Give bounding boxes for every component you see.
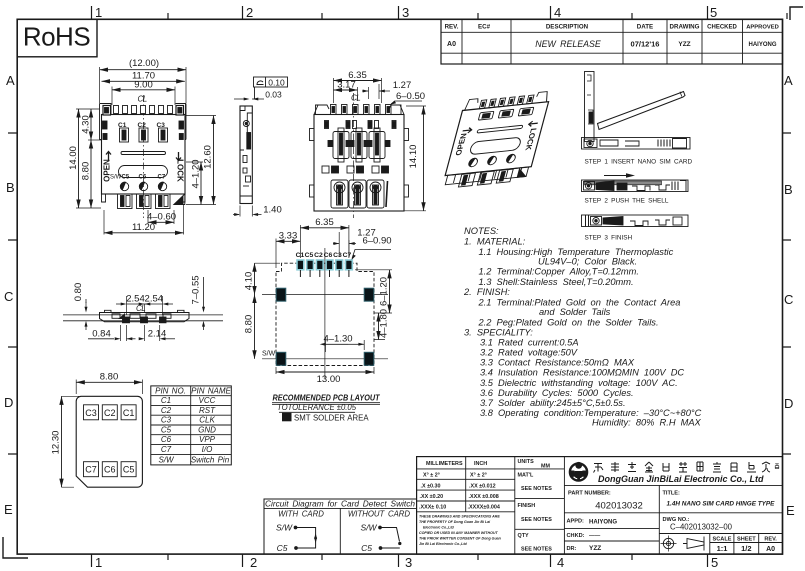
- svg-text:0.10: 0.10: [268, 78, 285, 88]
- svg-text:B: B: [6, 180, 15, 195]
- svg-text:Switch Pin: Switch Pin: [191, 455, 230, 464]
- svg-text:VPP: VPP: [199, 435, 216, 444]
- svg-text:D: D: [4, 395, 13, 410]
- svg-text:0.03: 0.03: [265, 90, 282, 100]
- svg-text:NEW RELEASE: NEW RELEASE: [535, 39, 601, 49]
- svg-text:YZZ: YZZ: [678, 41, 690, 48]
- svg-text:MM: MM: [541, 464, 550, 470]
- svg-text:A: A: [784, 73, 793, 88]
- svg-text:Circuit Diagram for Card D: Circuit Diagram for Card Detect Switch: [265, 498, 415, 508]
- svg-text:THE PROPERTY OF Dong Guan Jin: THE PROPERTY OF Dong Guan Jin Bi Lai: [419, 520, 491, 524]
- svg-text:6.35: 6.35: [315, 217, 334, 228]
- svg-text:C5: C5: [161, 425, 172, 434]
- svg-text:6–1.20: 6–1.20: [379, 277, 390, 306]
- svg-text:2: 2: [246, 5, 253, 20]
- svg-text:Humidity: 80% R.H MAX: Humidity: 80% R.H MAX: [592, 418, 702, 428]
- svg-text:DRAWING: DRAWING: [670, 24, 700, 31]
- svg-text:C7: C7: [158, 175, 166, 181]
- svg-text:C3: C3: [85, 408, 97, 418]
- svg-text:TITLE:: TITLE:: [663, 491, 681, 497]
- svg-text:3: 3: [402, 5, 409, 20]
- svg-text:14.00: 14.00: [68, 146, 79, 170]
- svg-text:C5: C5: [122, 175, 130, 181]
- svg-text:EC#: EC#: [478, 24, 491, 31]
- svg-text:C5: C5: [123, 465, 135, 475]
- svg-text:6–0.90: 6–0.90: [362, 236, 391, 247]
- svg-text:STEP 3 FINISH: STEP 3 FINISH: [585, 235, 633, 242]
- svg-text:9.00: 9.00: [134, 80, 153, 91]
- svg-text:3.3 Contact Resistance:50mΩ: 3.3 Contact Resistance:50mΩ MAX: [480, 358, 635, 368]
- svg-text:S/W: S/W: [276, 523, 293, 533]
- svg-text:C1: C1: [161, 396, 171, 405]
- svg-text:C: C: [784, 292, 793, 307]
- svg-text:1.3 Shell:Stainless Steel,T=: 1.3 Shell:Stainless Steel,T=0.20mm.: [479, 277, 634, 287]
- svg-text:3.2 Rated voltage:50V: 3.2 Rated voltage:50V: [480, 348, 578, 358]
- svg-text:C6: C6: [324, 252, 333, 259]
- svg-text:1/2: 1/2: [741, 544, 751, 553]
- svg-text:RST: RST: [199, 406, 216, 415]
- svg-text:SEE NOTES: SEE NOTES: [521, 547, 552, 553]
- svg-text:Jin Bi Lai Electronic Co.,Lt: Jin Bi Lai Electronic Co.,Ltd: [419, 542, 468, 546]
- svg-text:APPROVED: APPROVED: [746, 25, 779, 31]
- svg-text:C6: C6: [161, 435, 172, 444]
- svg-text:8.80: 8.80: [81, 162, 92, 181]
- svg-text:3.7 Solder ability:245±5°C,5: 3.7 Solder ability:245±5°C,5±0.5s.: [480, 398, 626, 408]
- svg-text:A: A: [6, 73, 15, 88]
- svg-text:4–1.20: 4–1.20: [191, 159, 202, 188]
- svg-text:E: E: [786, 503, 795, 518]
- svg-text:C1: C1: [123, 408, 135, 418]
- svg-text:CLK: CLK: [199, 416, 215, 425]
- svg-text:07/12'16: 07/12'16: [631, 40, 660, 49]
- svg-text:HAIYONG: HAIYONG: [589, 520, 617, 526]
- svg-text:SEE NOTES: SEE NOTES: [521, 486, 552, 492]
- svg-text:WITH CARD: WITH CARD: [278, 510, 324, 519]
- svg-text:SMT SOLDER AREA: SMT SOLDER AREA: [294, 413, 369, 422]
- svg-text:3.8 Operating condition:Temp: 3.8 Operating condition:Temperature: –30…: [480, 408, 702, 418]
- svg-text:C5: C5: [277, 543, 288, 553]
- svg-text:C3: C3: [333, 252, 342, 259]
- svg-text:C3: C3: [161, 416, 172, 425]
- svg-text:1: 1: [95, 5, 102, 20]
- svg-text:UNITS: UNITS: [518, 459, 535, 465]
- svg-text:4: 4: [554, 5, 561, 20]
- svg-text:C2: C2: [104, 408, 116, 418]
- svg-text:1.40: 1.40: [263, 205, 282, 216]
- svg-text:REV.: REV.: [445, 24, 459, 31]
- svg-text:C6: C6: [104, 465, 116, 475]
- svg-text:COPIED OR USED IN ANY MANNER W: COPIED OR USED IN ANY MANNER WITHOUT: [419, 531, 498, 535]
- svg-text:and Solder Tails: and Solder Tails: [539, 307, 611, 317]
- svg-text:2.54: 2.54: [145, 294, 164, 305]
- svg-text:PIN NO.: PIN NO.: [155, 386, 186, 395]
- svg-text:0.84: 0.84: [92, 329, 111, 340]
- svg-text:CL: CL: [351, 94, 360, 103]
- svg-text:12.30: 12.30: [51, 431, 62, 455]
- svg-text:3.5 Dielectric withstanding: 3.5 Dielectric withstanding voltage: 100…: [480, 378, 678, 388]
- svg-text:7–0.55: 7–0.55: [191, 275, 202, 304]
- svg-text:13.00: 13.00: [317, 374, 341, 385]
- svg-text:DongGuan JinBiLai Electronic C: DongGuan JinBiLai Electronic Co., Ltd: [598, 474, 764, 484]
- svg-text:VCC: VCC: [199, 396, 216, 405]
- svg-text:3.1 Rated current:0.5A: 3.1 Rated current:0.5A: [480, 338, 579, 348]
- svg-text:STEP 1 INSERT NANO SIM CARD: STEP 1 INSERT NANO SIM CARD: [585, 159, 693, 166]
- svg-text:THESE DRAWINGS AND SPECIFICATI: THESE DRAWINGS AND SPECIFICATIONS ARE: [419, 515, 500, 519]
- svg-text:DESCRIPTION: DESCRIPTION: [546, 24, 589, 31]
- svg-text:DR:: DR:: [567, 546, 577, 552]
- svg-text:1: 1: [95, 555, 102, 570]
- svg-text:1.2 Terminal:Copper Alloy,T=: 1.2 Terminal:Copper Alloy,T=0.12mm.: [479, 267, 639, 277]
- svg-text:STEP 2 PUSH THE SHELL: STEP 2 PUSH THE SHELL: [585, 198, 669, 205]
- svg-text:1.4H NANO SIM CARD HINGE TYPE: 1.4H NANO SIM CARD HINGE TYPE: [667, 501, 776, 508]
- svg-text:CHKD:: CHKD:: [567, 533, 585, 539]
- svg-text:HAIYONG: HAIYONG: [748, 42, 776, 48]
- svg-text:2. FINISH:: 2. FINISH:: [463, 287, 510, 297]
- svg-text:C–402013032–00: C–402013032–00: [670, 523, 733, 532]
- svg-text:3: 3: [405, 555, 412, 570]
- svg-text:4–0.60: 4–0.60: [147, 212, 176, 223]
- svg-text:3.4 Insulation Resistance:10: 3.4 Insulation Resistance:100MΩMIN 100V …: [480, 368, 684, 378]
- svg-text:C7: C7: [343, 252, 352, 259]
- svg-text:14.10: 14.10: [408, 145, 419, 169]
- svg-text:3. SPECIALITY:: 3. SPECIALITY:: [464, 328, 533, 338]
- svg-text:5: 5: [711, 555, 718, 570]
- svg-text:4.30: 4.30: [81, 115, 92, 134]
- svg-text:A0: A0: [447, 41, 456, 48]
- svg-text:MAT'L: MAT'L: [518, 473, 535, 479]
- svg-text:1:1: 1:1: [717, 544, 728, 553]
- svg-text:3.33: 3.33: [279, 231, 298, 242]
- svg-text:.XX ±0.20: .XX ±0.20: [420, 494, 444, 500]
- svg-text:INCH: INCH: [474, 461, 487, 467]
- svg-text:S/W: S/W: [360, 523, 377, 533]
- svg-text:I/O: I/O: [202, 445, 213, 454]
- svg-text:2.1 Terminal:Plated Gold on: 2.1 Terminal:Plated Gold on the Contact …: [478, 298, 681, 308]
- svg-text:X° ± 2°: X° ± 2°: [423, 473, 440, 479]
- svg-text:5: 5: [710, 5, 717, 20]
- svg-text:SHEET: SHEET: [737, 537, 756, 543]
- svg-text:2.54: 2.54: [126, 294, 145, 305]
- svg-text:.XXXX±0.004: .XXXX±0.004: [468, 505, 500, 511]
- svg-text:E: E: [4, 502, 13, 517]
- svg-text:2.2 Peg:Plated Gold on the: 2.2 Peg:Plated Gold on the Solder Tails.: [478, 318, 659, 328]
- svg-text:Electronic Co.,Ltd: Electronic Co.,Ltd: [423, 526, 455, 530]
- svg-text:4–1.30: 4–1.30: [323, 334, 352, 345]
- svg-text:SCALE: SCALE: [713, 537, 732, 543]
- svg-text:2: 2: [250, 555, 257, 570]
- svg-text:.XX ±0.012: .XX ±0.012: [469, 483, 496, 489]
- svg-text:C: C: [4, 289, 13, 304]
- svg-text:402013032: 402013032: [595, 501, 643, 512]
- svg-text:RECOMMENDED PCB LAYOUT: RECOMMENDED PCB LAYOUT: [273, 394, 381, 403]
- svg-text:.XXX ±0.008: .XXX ±0.008: [469, 494, 499, 500]
- svg-text:1.1 Housing:High Temperature: 1.1 Housing:High Temperature Thermoplast…: [479, 247, 674, 257]
- svg-text:APPD:: APPD:: [567, 519, 585, 525]
- svg-text:1.27: 1.27: [393, 80, 412, 91]
- svg-text:S/W: S/W: [110, 175, 122, 181]
- svg-text:PIN NAME: PIN NAME: [191, 386, 231, 395]
- svg-text:C5: C5: [305, 252, 314, 259]
- svg-text:C2: C2: [161, 406, 172, 415]
- svg-text:SEE NOTES: SEE NOTES: [521, 517, 552, 523]
- svg-text:4: 4: [557, 555, 564, 570]
- svg-text:QTY: QTY: [518, 533, 529, 539]
- svg-text:CL: CL: [136, 304, 145, 313]
- svg-text:C2: C2: [314, 252, 323, 259]
- svg-text:12.60: 12.60: [203, 145, 214, 169]
- svg-text:THE PRIOR WRITTEN CONSENT OF D: THE PRIOR WRITTEN CONSENT OF Dong Guan: [419, 537, 502, 541]
- svg-text:NOTES:: NOTES:: [464, 226, 499, 236]
- svg-text:WITHOUT CARD: WITHOUT CARD: [348, 510, 411, 519]
- svg-text:3.17: 3.17: [337, 80, 356, 91]
- svg-text:YZZ: YZZ: [589, 545, 601, 552]
- svg-text:GND: GND: [198, 425, 216, 434]
- svg-text:X° ± 2°: X° ± 2°: [470, 473, 487, 479]
- svg-text:UL94V–0; Color Black.: UL94V–0; Color Black.: [538, 257, 637, 267]
- svg-text:S/W: S/W: [158, 455, 175, 464]
- svg-text:TOTOLERANCE ±0.05: TOTOLERANCE ±0.05: [277, 403, 356, 412]
- svg-text:RoHS: RoHS: [23, 22, 91, 52]
- svg-text:D: D: [784, 396, 793, 411]
- svg-text:MILLIMETERS: MILLIMETERS: [426, 461, 463, 467]
- svg-text:4.10: 4.10: [244, 272, 255, 291]
- svg-text:.X ±0.30: .X ±0.30: [421, 483, 441, 489]
- svg-text:1. MATERIAL:: 1. MATERIAL:: [464, 237, 526, 247]
- svg-text:8.80: 8.80: [100, 372, 119, 383]
- svg-text:C7: C7: [85, 465, 97, 475]
- svg-text:C7: C7: [161, 445, 172, 454]
- svg-text:8.80: 8.80: [244, 315, 255, 334]
- svg-text:0.80: 0.80: [73, 283, 84, 302]
- svg-text:.XXX± 0.10: .XXX± 0.10: [419, 505, 446, 511]
- svg-text:11.20: 11.20: [132, 222, 155, 233]
- svg-text:REV.: REV.: [764, 537, 777, 543]
- svg-text:FINISH: FINISH: [518, 503, 536, 509]
- svg-text:DATE: DATE: [637, 24, 653, 31]
- svg-text:CHECKED: CHECKED: [707, 25, 737, 31]
- svg-text:A0: A0: [766, 546, 775, 553]
- svg-text:6–0.50: 6–0.50: [396, 91, 425, 102]
- svg-text:S/W: S/W: [262, 351, 276, 358]
- svg-text:B: B: [784, 182, 793, 197]
- svg-text:PART NUMBER:: PART NUMBER:: [568, 491, 611, 497]
- svg-text:(12.00): (12.00): [129, 58, 159, 69]
- svg-text:3.6 Durability Cycles: 5000: 3.6 Durability Cycles: 5000 Cycles.: [480, 388, 634, 398]
- svg-text:C6: C6: [139, 175, 147, 181]
- svg-text:——: ——: [589, 533, 601, 539]
- svg-text:CL: CL: [138, 95, 147, 104]
- svg-text:LOCK: LOCK: [176, 159, 185, 182]
- svg-text:C5: C5: [361, 543, 372, 553]
